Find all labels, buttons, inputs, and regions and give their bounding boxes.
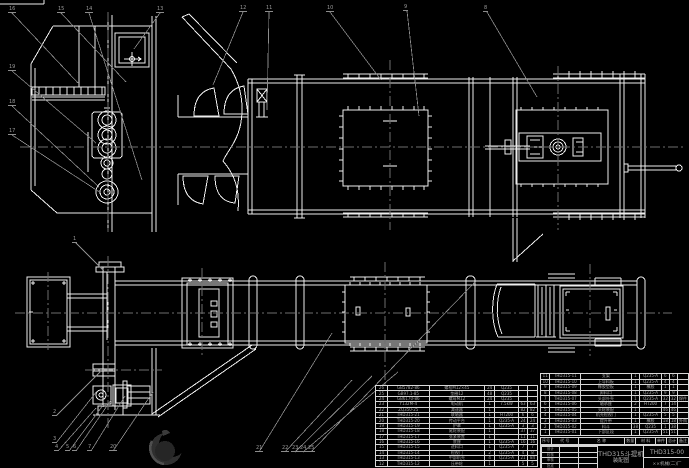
- bom-cell: THD315-09: [550, 385, 581, 391]
- bom-cell: 单件: [655, 438, 666, 445]
- bom-cell: THD315-07: [550, 396, 581, 402]
- bom-cell: 数量: [625, 438, 636, 445]
- bom-cell: 外购: [677, 418, 688, 424]
- bom-cell: 总计: [666, 438, 677, 445]
- balloon-callout-14: 14: [85, 6, 93, 13]
- title-block-product: THD315斗提机 装配图: [597, 445, 645, 468]
- upper-view-linework: [31, 14, 682, 262]
- bom-row: 19THD315-19护罩1Q235-A33: [376, 423, 538, 428]
- balloon-callout-5: 5: [65, 444, 70, 451]
- balloon-callout-13: 13: [156, 6, 164, 13]
- product-name: THD315斗提机: [598, 451, 644, 458]
- bom-cell: [677, 429, 688, 435]
- bom-cell: 5: [519, 461, 528, 466]
- cad-drawing-canvas: 26GB5782-86螺栓M12×4524Q23525GB97.1-85垫圈12…: [0, 0, 689, 468]
- bom-row: 20THD315-20传动平台1Q235-A2424: [376, 418, 538, 423]
- logo-crescent: [150, 430, 185, 465]
- balloon-callout-20: 20: [109, 444, 117, 451]
- bom-cell: THD315-03: [550, 418, 581, 424]
- bom-cell: THD315-10: [550, 379, 581, 385]
- balloon-callout-21: 21: [255, 445, 263, 452]
- bom-row: 12THD315-12压带轮155: [376, 461, 538, 466]
- bom-cell: 下部区段: [581, 429, 631, 435]
- bom-cell: [495, 461, 519, 466]
- balloon-callout-2: 2: [52, 409, 57, 416]
- bom-row: 16THD315-16底座1Q235-A1616: [376, 439, 538, 444]
- balloon-callout-7: 7: [87, 444, 92, 451]
- bom-row: 4THD315-04机壳检视门1Q235-A55: [541, 413, 689, 419]
- balloon-callout-4: 4: [54, 444, 59, 451]
- bom-cell: [559, 463, 579, 468]
- balloon-callout-18: 18: [8, 99, 16, 106]
- bom-cell: THD315-12: [387, 461, 429, 466]
- balloon-callout-9: 9: [403, 4, 408, 11]
- bom-cell: [579, 463, 598, 468]
- bom-cell: THD315-06: [550, 401, 581, 407]
- bom-table-left: 26GB5782-86螺栓M12×4524Q23525GB97.1-85垫圈12…: [375, 385, 538, 468]
- balloon-callout-10: 10: [326, 5, 334, 12]
- bom-row: 14THD315-14检视门2Q235-A48: [376, 450, 538, 455]
- bom-cell: THD315-08: [550, 390, 581, 396]
- bom-cell: 12: [376, 461, 388, 466]
- bom-cell: 备注: [677, 438, 688, 445]
- title-block-sign-grid: 设计校核审核批准: [540, 445, 599, 468]
- centerlines: [15, 12, 683, 428]
- bom-cell: THD315-02: [550, 424, 581, 430]
- bom-cell: 材 料: [636, 438, 656, 445]
- company-cell: ××机械(二)厂: [643, 457, 689, 468]
- balloon-callout-16: 16: [8, 6, 16, 13]
- bom-cell: THD315-05: [550, 407, 581, 413]
- bom-header-row: 序号代 号名 称数量材 料单件总计备注: [541, 438, 689, 445]
- balloon-callout-1: 1: [72, 236, 77, 243]
- company-name: ××机械(二)厂: [652, 461, 681, 467]
- bom-cell: 焊件: [677, 396, 688, 402]
- balloon-callout-6: 6: [72, 444, 77, 451]
- balloon-callout-3: 3: [52, 436, 57, 443]
- bom-cell: 名 称: [578, 438, 625, 445]
- bom-cell: 代 号: [552, 438, 579, 445]
- balloon-callout-12: 12: [239, 5, 247, 12]
- bom-cell: THD315-04: [550, 413, 581, 419]
- bom-cell: 压带轮: [429, 461, 485, 466]
- balloon-callout-22: 22: [281, 445, 289, 452]
- bom-header-row: 序号代 号名 称数量材 料单件总计备注: [540, 437, 689, 445]
- drawing-type: 装配图: [613, 458, 630, 465]
- balloon-callout-15: 15: [57, 6, 65, 13]
- bom-cell: 1: [485, 461, 495, 466]
- bom-row: 1THD315-01下部区段1Q235-A5151: [541, 429, 689, 435]
- balloon-callout-8: 8: [483, 5, 488, 12]
- bom-cell: 批准: [542, 463, 560, 468]
- bom-cell: THD315-01: [550, 429, 581, 435]
- bom-cell: 5: [527, 461, 537, 466]
- sheet-frame-corner: [0, 0, 44, 4]
- bom-cell: 序号: [541, 438, 552, 445]
- balloon-callout-25: 25: [307, 445, 315, 452]
- balloon-callout-17: 17: [8, 128, 16, 135]
- bom-row: 15THD315-15进料口1Q235-A77: [376, 445, 538, 450]
- sign-row: 批准: [542, 463, 598, 468]
- bom-cell: 51: [669, 429, 677, 435]
- balloon-callout-19: 19: [8, 64, 16, 71]
- bom-cell: Q235-A: [640, 429, 661, 435]
- bom-table-right: 11THD315-11支架1Q235-A6610THD315-10上导料板1Q2…: [540, 373, 689, 437]
- bom-cell: THD315-11: [550, 374, 581, 380]
- bom-cell: 1: [631, 429, 640, 435]
- balloon-callout-11: 11: [265, 5, 273, 12]
- bom-row: 13THD315-13中部机壳4Q235-A2184: [376, 456, 538, 461]
- bom-cell: 51: [661, 429, 669, 435]
- bom-cell: 1: [541, 429, 550, 435]
- drawing-number: THD315-00: [650, 449, 684, 456]
